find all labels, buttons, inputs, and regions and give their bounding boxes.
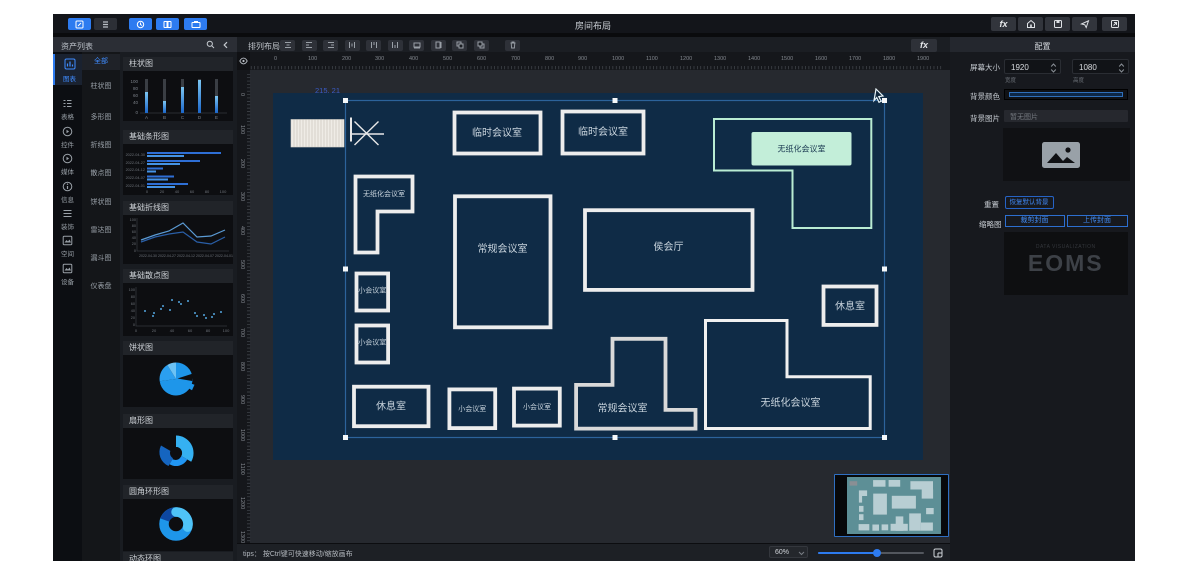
svg-text:D: D [198,115,202,120]
svg-text:临时会议室: 临时会议室 [472,126,522,139]
svg-text:20: 20 [160,189,165,194]
svg-text:小会议室: 小会议室 [458,404,486,413]
svg-text:临时会议室: 临时会议室 [578,125,628,138]
svg-text:0: 0 [135,110,138,115]
svg-text:60: 60 [190,189,195,194]
svg-text:100: 100 [129,288,135,292]
svg-text:2022-04-12: 2022-04-12 [177,254,195,258]
svg-text:2022-04-07: 2022-04-07 [196,254,214,258]
svg-text:小会议室: 小会议室 [358,285,386,294]
svg-text:无纸化会议室: 无纸化会议室 [363,189,405,198]
svg-text:2022-04-01: 2022-04-01 [126,184,145,188]
svg-text:小会议室: 小会议室 [358,337,386,346]
svg-text:2022-04-01: 2022-04-01 [215,254,233,258]
svg-text:2022-04-30: 2022-04-30 [126,153,145,157]
svg-text:小会议室: 小会议室 [523,402,551,411]
svg-text:20: 20 [152,328,157,333]
svg-text:80: 80 [131,295,135,299]
svg-text:100: 100 [220,189,227,194]
svg-text:40: 40 [132,236,136,240]
svg-text:无纸化会议室: 无纸化会议室 [777,143,825,153]
svg-text:20: 20 [131,316,135,320]
svg-text:40: 40 [131,309,135,313]
svg-text:100: 100 [130,79,138,84]
svg-text:80: 80 [206,328,211,333]
svg-text:2022-04-30: 2022-04-30 [139,254,157,258]
svg-text:无纸化会议室: 无纸化会议室 [760,396,820,409]
svg-text:0: 0 [146,189,149,194]
svg-text:60: 60 [133,93,139,98]
svg-text:0: 0 [133,323,135,327]
svg-text:0: 0 [134,249,136,253]
svg-text:80: 80 [133,86,139,91]
svg-text:常规会议室: 常规会议室 [597,401,647,414]
svg-text:2022-04-27: 2022-04-27 [158,254,176,258]
svg-text:60: 60 [188,328,193,333]
svg-text:休息室: 休息室 [835,299,865,312]
svg-text:60: 60 [132,230,136,234]
svg-text:B: B [163,115,166,120]
svg-text:100: 100 [223,328,230,333]
svg-text:侯会厅: 侯会厅 [653,240,683,253]
svg-text:80: 80 [205,189,210,194]
svg-text:休息室: 休息室 [376,399,406,412]
svg-text:A: A [145,115,148,120]
svg-text:20: 20 [132,242,136,246]
svg-text:60: 60 [131,302,135,306]
svg-text:40: 40 [170,328,175,333]
svg-text:40: 40 [175,189,180,194]
svg-text:常规会议室: 常规会议室 [477,242,527,255]
svg-text:2022-04-12: 2022-04-12 [126,168,145,172]
svg-text:C: C [181,115,185,120]
svg-text:2022-04-27: 2022-04-27 [126,161,145,165]
svg-text:100: 100 [130,218,136,222]
svg-text:0: 0 [135,328,138,333]
svg-text:40: 40 [133,100,139,105]
svg-text:E: E [215,115,218,120]
svg-text:80: 80 [132,224,136,228]
svg-text:2022-04-07: 2022-04-07 [126,176,145,180]
